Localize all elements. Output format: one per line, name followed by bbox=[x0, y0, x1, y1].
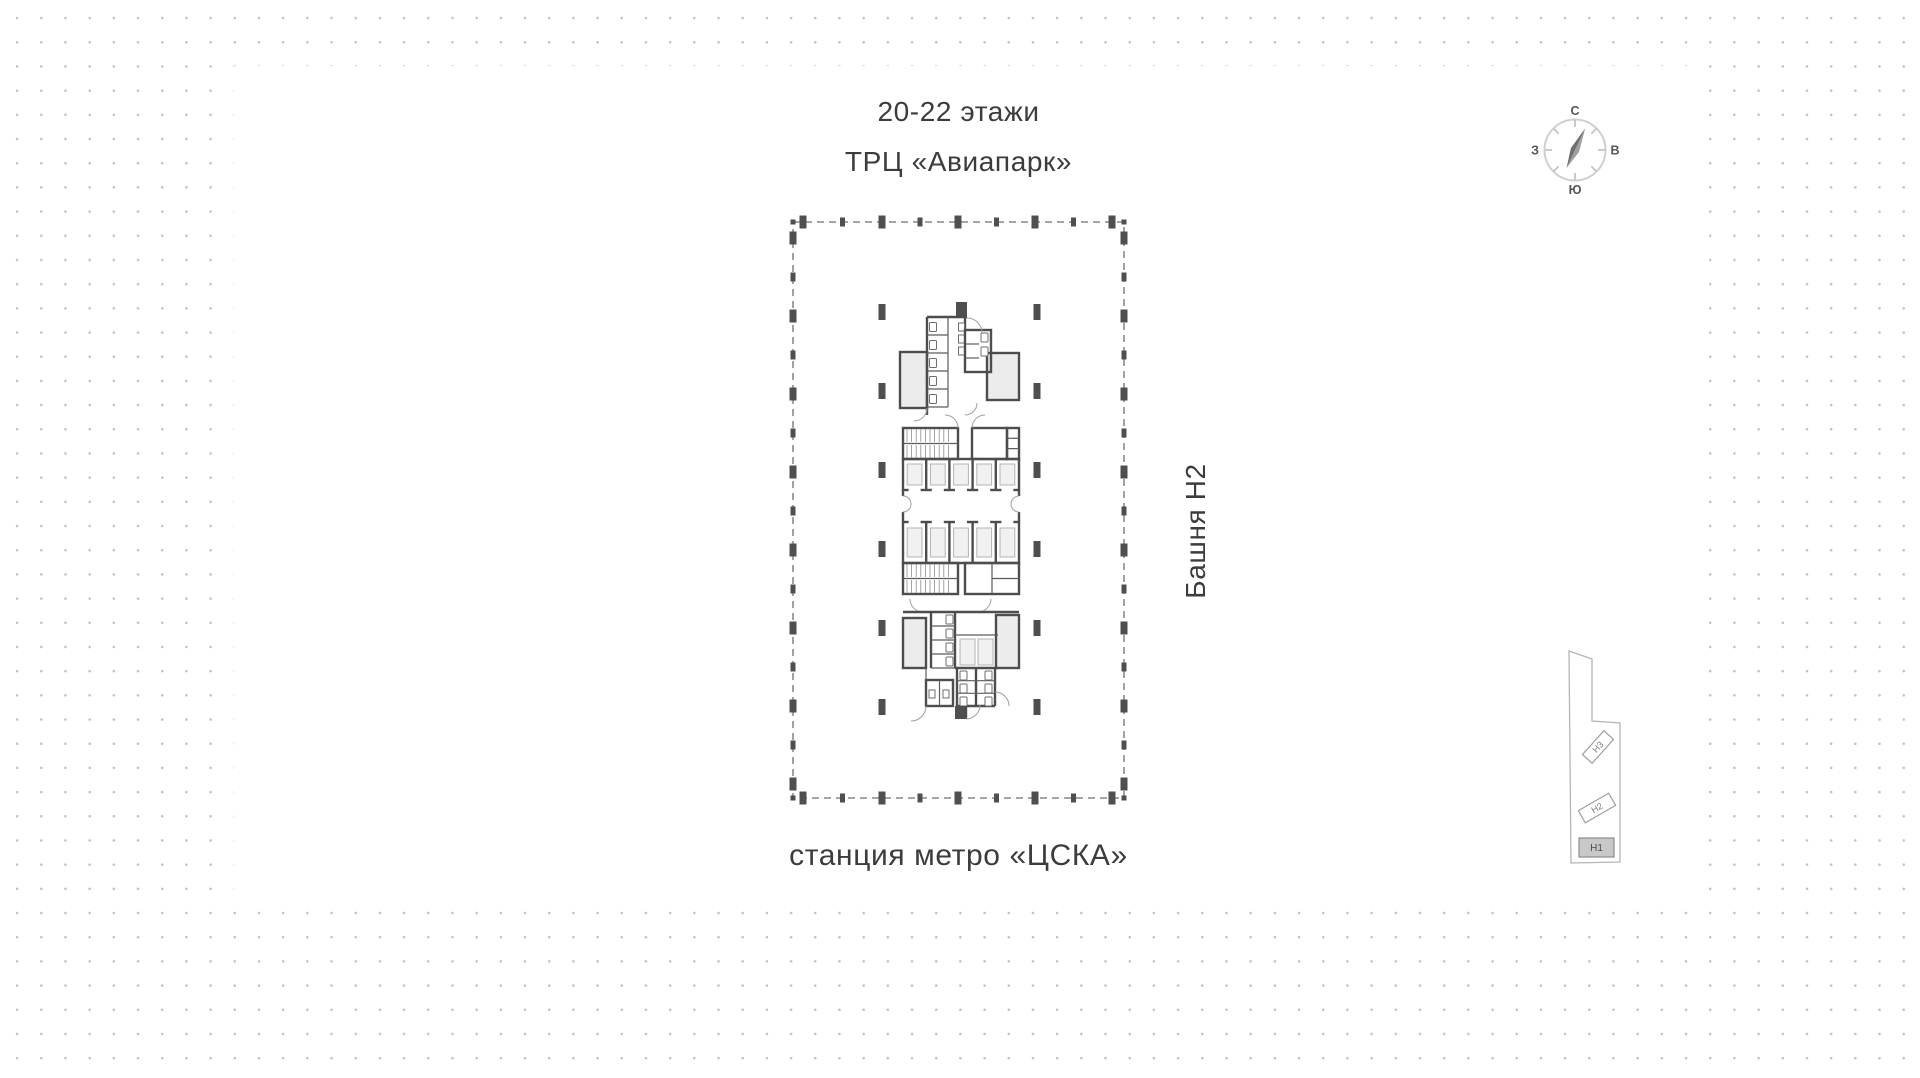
page-title-mall: ТРЦ «Авиапарк» bbox=[793, 146, 1124, 178]
core-elevator-lobby bbox=[903, 490, 1019, 522]
core-upper-stair-row bbox=[903, 415, 1019, 459]
floor-plan bbox=[793, 222, 1124, 798]
core-lower-stair-row bbox=[903, 563, 1019, 612]
floor-plan-page: 20-22 этажи ТРЦ «Авиапарк» Башня Н2 стан… bbox=[0, 0, 1920, 1078]
shaft-block-top bbox=[956, 302, 967, 318]
shaft-room-left bbox=[903, 618, 926, 668]
shaft-block-bottom bbox=[955, 706, 966, 719]
page-title-floors: 20-22 этажи bbox=[793, 96, 1124, 128]
metro-label: станция метро «ЦСКА» bbox=[643, 839, 1274, 873]
compass-south-label: Ю bbox=[1569, 183, 1582, 197]
tower-label: Башня Н2 bbox=[1180, 463, 1212, 598]
compass-needle-icon bbox=[1567, 128, 1586, 168]
minimap-building-h1[interactable]: Н1 bbox=[1579, 838, 1614, 857]
shaft-room-right bbox=[996, 615, 1019, 668]
compass-west-label: З bbox=[1531, 144, 1539, 158]
core-top-wc-section bbox=[900, 302, 1019, 421]
core-bottom-annex bbox=[911, 668, 1009, 721]
core-elevator-bank-lower bbox=[903, 520, 1019, 563]
minimap-building-h1-label: Н1 bbox=[1590, 843, 1603, 854]
elevator-machine-room-left bbox=[900, 352, 927, 408]
core-elevator-bank-upper bbox=[903, 459, 1019, 492]
compass-north-label: С bbox=[1570, 104, 1579, 118]
compass-east-label: В bbox=[1610, 144, 1619, 158]
core-bottom-wc-section bbox=[903, 612, 1019, 668]
compass-icon: С В Ю З bbox=[1525, 100, 1625, 200]
site-minimap: Н3 Н2 Н1 bbox=[1555, 638, 1635, 874]
